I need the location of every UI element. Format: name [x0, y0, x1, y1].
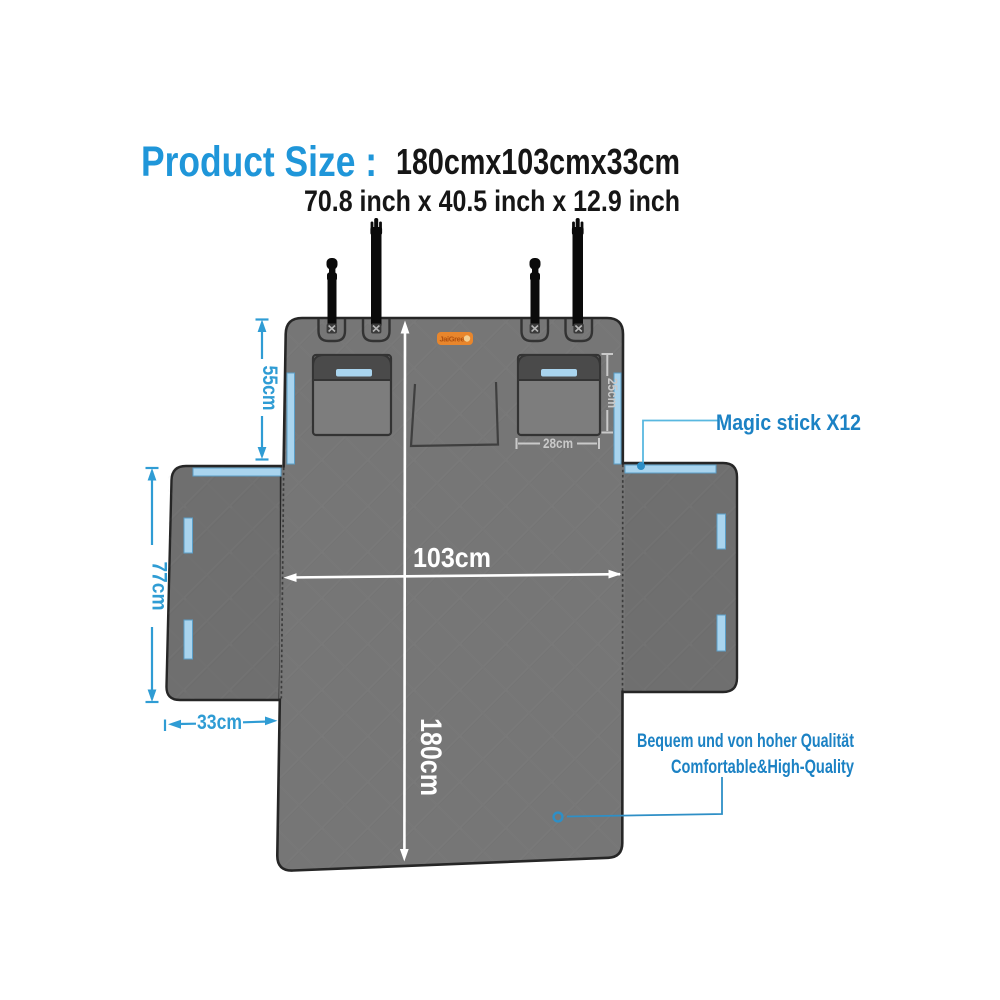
- svg-text:180cmx103cmx33cm: 180cmx103cmx33cm: [396, 141, 680, 182]
- svg-text:25cm: 25cm: [605, 378, 621, 408]
- svg-text:28cm: 28cm: [543, 435, 573, 451]
- svg-text:180cm: 180cm: [414, 718, 447, 796]
- svg-text:103cm: 103cm: [413, 542, 491, 573]
- svg-text:Magic stick X12: Magic stick X12: [716, 410, 861, 435]
- svg-text:Product Size :: Product Size :: [141, 138, 377, 186]
- svg-text:Bequem und von hoher Qualität: Bequem und von hoher Qualität: [637, 730, 854, 752]
- svg-text:77cm: 77cm: [148, 562, 171, 611]
- svg-text:Comfortable&High-Quality: Comfortable&High-Quality: [671, 756, 854, 778]
- svg-text:33cm: 33cm: [197, 711, 242, 734]
- svg-text:55cm: 55cm: [258, 366, 281, 411]
- svg-text:70.8 inch x 40.5 inch x 12.9 i: 70.8 inch x 40.5 inch x 12.9 inch: [304, 185, 680, 218]
